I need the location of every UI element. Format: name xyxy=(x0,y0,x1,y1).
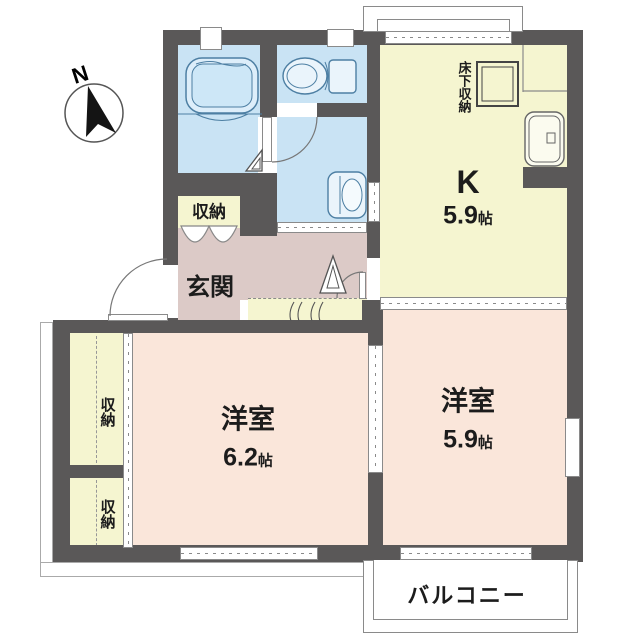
toilet-door-arc xyxy=(272,117,317,162)
kitchen-size: 5.9帖 xyxy=(443,204,493,229)
kitchen-counter xyxy=(523,45,567,166)
bedroom-west-size-value: 6.2 xyxy=(223,444,258,472)
washbasin-icon xyxy=(328,172,366,218)
entrance-door-arc xyxy=(110,259,167,316)
kitchen-label: K xyxy=(456,166,479,198)
bathtub-icon xyxy=(178,58,262,121)
bedroom-west-size-unit: 帖 xyxy=(258,453,273,470)
floor-plan: N xyxy=(0,0,640,640)
bedroom-west-size: 6.2帖 xyxy=(223,446,273,471)
stair-direction-triangle-icon xyxy=(320,256,346,293)
north-label: N xyxy=(69,60,92,89)
bedroom-east-label: 洋室 xyxy=(441,389,495,416)
bedroom-east-size-unit: 帖 xyxy=(478,435,493,452)
bath-door-triangle-icon xyxy=(246,150,262,171)
bedroom-west-label: 洋室 xyxy=(221,407,275,434)
closet-west-upper-label: 収納 xyxy=(100,397,115,427)
kitchen-size-unit: 帖 xyxy=(478,211,493,228)
closet-west-lower-label: 収納 xyxy=(100,499,115,529)
entrance-label: 玄関 xyxy=(186,276,234,300)
closet-hall-label: 収納 xyxy=(192,204,226,221)
underfloor-storage-hatch-icon xyxy=(477,62,518,106)
kitchen-sink-icon xyxy=(525,112,564,166)
stair-break-marks xyxy=(290,302,323,321)
bedroom-east-size: 5.9帖 xyxy=(443,428,493,453)
toilet-icon xyxy=(283,58,356,94)
underfloor-storage-label: 床下収納 xyxy=(458,61,471,113)
fixtures-overlay: N xyxy=(0,0,640,640)
entrance-closet-folding-door xyxy=(181,226,237,242)
balcony-label: バルコニー xyxy=(407,585,527,607)
bedroom-east-size-value: 5.9 xyxy=(443,426,478,454)
compass: N xyxy=(65,60,123,142)
kitchen-size-value: 5.9 xyxy=(443,202,478,230)
